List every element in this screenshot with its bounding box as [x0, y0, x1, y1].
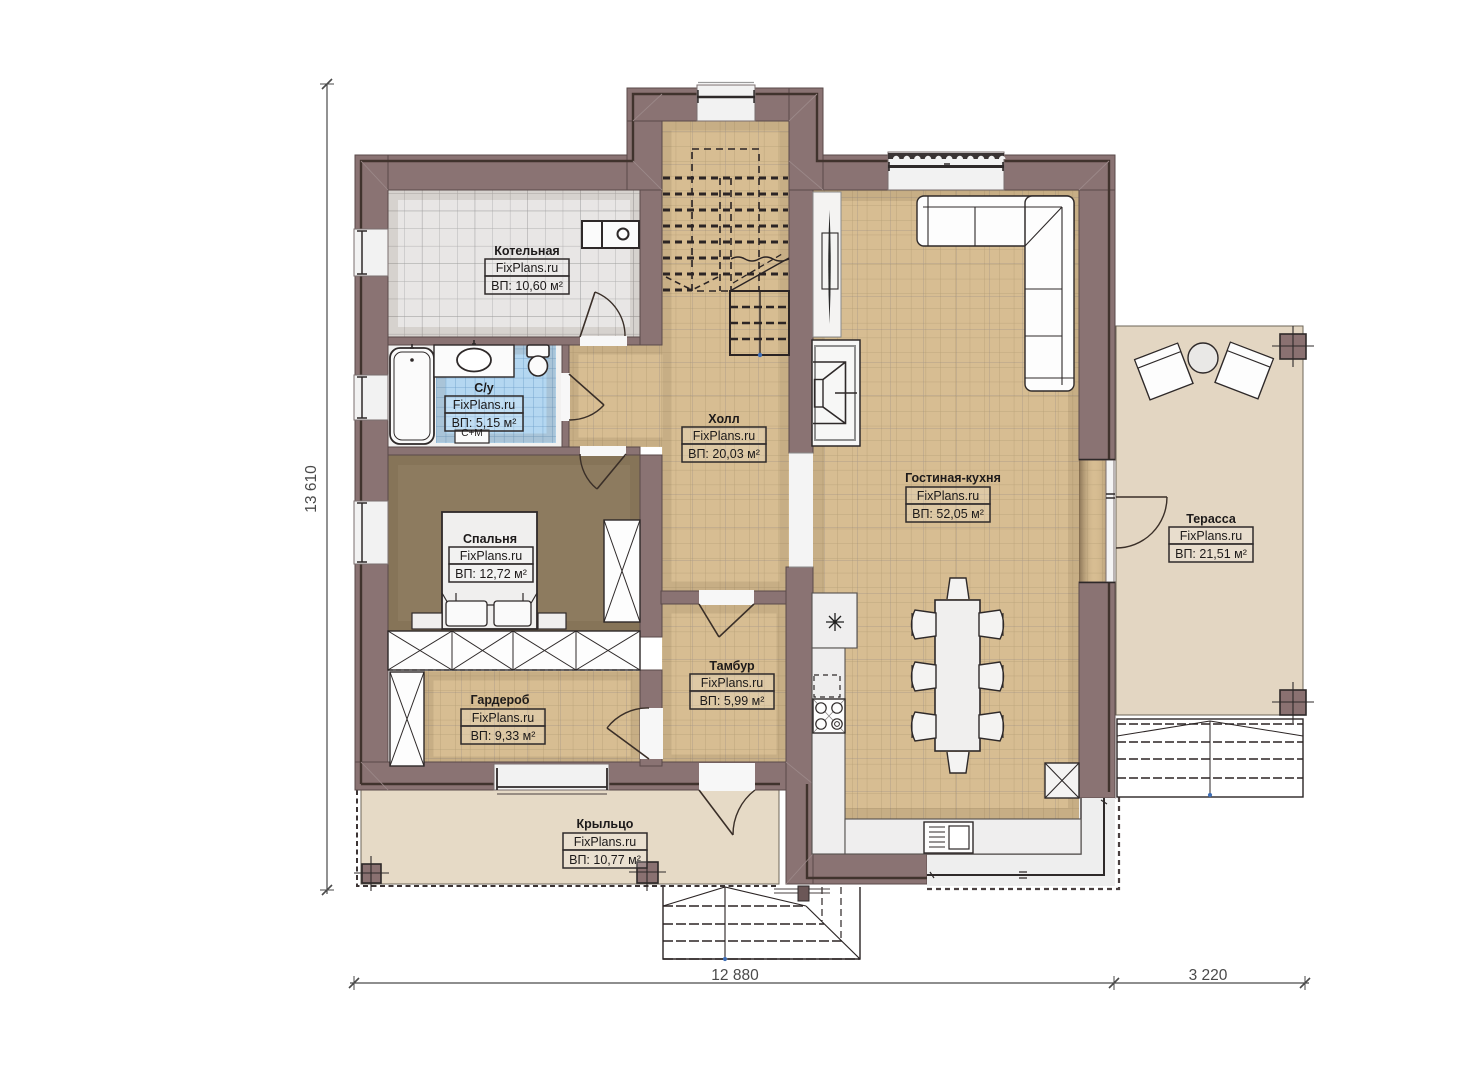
svg-text:Терасса: Терасса [1186, 512, 1237, 526]
svg-text:ВП: 12,72 м²: ВП: 12,72 м² [455, 567, 527, 581]
svg-text:FixPlans.ru: FixPlans.ru [472, 711, 535, 725]
svg-text:ВП: 10,77 м²: ВП: 10,77 м² [569, 853, 641, 867]
svg-text:ВП: 10,60 м²: ВП: 10,60 м² [491, 279, 563, 293]
svg-text:Холл: Холл [708, 412, 739, 426]
svg-text:FixPlans.ru: FixPlans.ru [453, 398, 516, 412]
svg-text:Гостиная-кухня: Гостиная-кухня [905, 471, 1001, 485]
svg-text:ВП: 5,99 м²: ВП: 5,99 м² [700, 694, 765, 708]
svg-text:ВП: 20,03 м²: ВП: 20,03 м² [688, 447, 760, 461]
svg-text:Тамбур: Тамбур [709, 659, 755, 673]
svg-text:FixPlans.ru: FixPlans.ru [496, 261, 559, 275]
svg-text:ВП: 21,51 м²: ВП: 21,51 м² [1175, 547, 1247, 561]
svg-text:FixPlans.ru: FixPlans.ru [701, 676, 764, 690]
svg-text:12 880: 12 880 [711, 967, 759, 984]
svg-text:FixPlans.ru: FixPlans.ru [574, 835, 637, 849]
svg-text:FixPlans.ru: FixPlans.ru [917, 489, 980, 503]
svg-text:ВП: 9,33 м²: ВП: 9,33 м² [471, 729, 536, 743]
svg-text:С+М: С+М [461, 428, 482, 439]
svg-text:Спальня: Спальня [463, 532, 517, 546]
svg-text:3 220: 3 220 [1189, 967, 1228, 984]
svg-text:FixPlans.ru: FixPlans.ru [693, 429, 756, 443]
svg-text:Гардероб: Гардероб [470, 693, 529, 707]
svg-text:13 610: 13 610 [303, 465, 320, 513]
svg-text:FixPlans.ru: FixPlans.ru [1180, 529, 1243, 543]
svg-text:Крыльцо: Крыльцо [577, 817, 634, 831]
svg-text:Котельная: Котельная [494, 244, 559, 258]
svg-text:ВП: 52,05 м²: ВП: 52,05 м² [912, 507, 984, 521]
svg-text:С/у: С/у [474, 381, 494, 395]
svg-text:FixPlans.ru: FixPlans.ru [460, 549, 523, 563]
